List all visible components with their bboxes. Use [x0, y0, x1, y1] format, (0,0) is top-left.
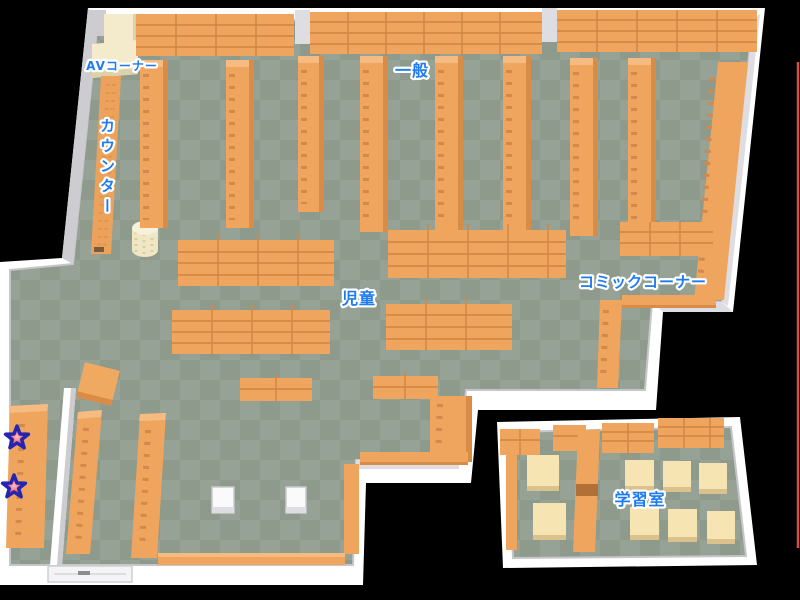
- top-left-pillar: [88, 10, 106, 36]
- label-study-room: 学習室: [614, 490, 665, 509]
- label-comic-corner: コミックコーナー: [579, 273, 707, 291]
- label-counter: カウンター: [98, 118, 116, 218]
- study-room: 学習室: [497, 417, 757, 568]
- label-general: 一般: [395, 61, 429, 80]
- floor-map-canvas: AVコーナー 一般 カウンター 児童 コミックコーナー: [0, 0, 800, 600]
- label-children: 児童: [341, 289, 376, 308]
- label-av-corner: AVコーナー: [86, 59, 158, 73]
- top-wall-pillar-1: [295, 10, 310, 44]
- top-wall-shelves: [136, 10, 757, 56]
- entrance-door: [48, 566, 132, 582]
- top-wall-pillar-2: [542, 8, 557, 42]
- library-floor-map: AVコーナー 一般 カウンター 児童 コミックコーナー: [0, 0, 800, 600]
